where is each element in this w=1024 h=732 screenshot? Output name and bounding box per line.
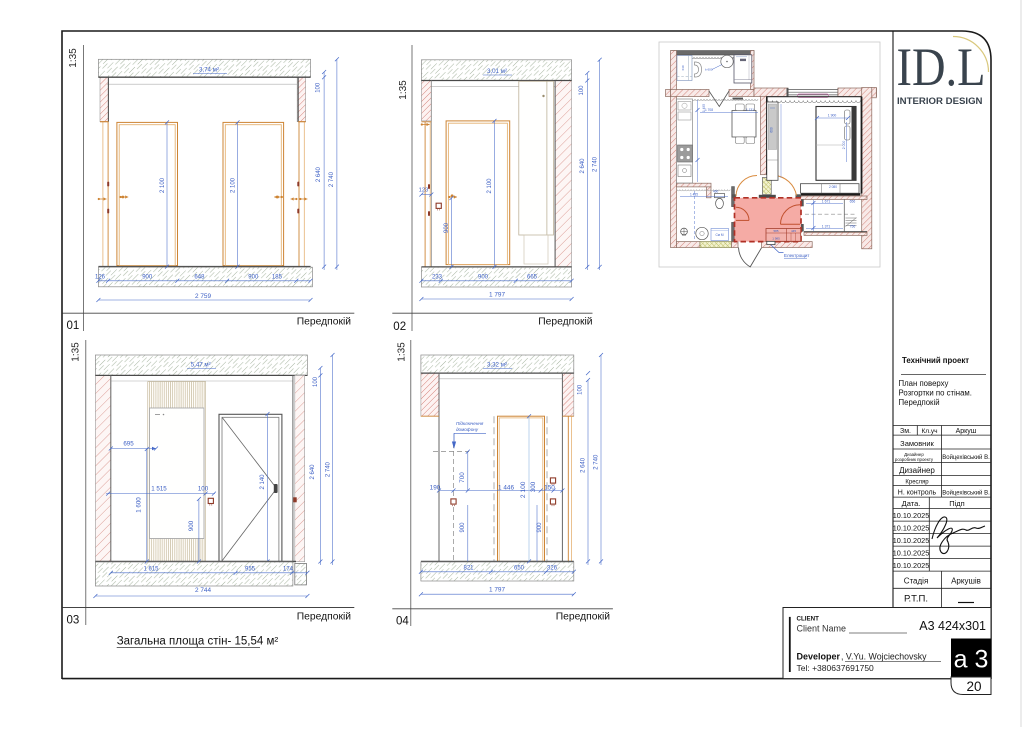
- svg-text:1 515: 1 515: [151, 486, 167, 493]
- svg-text:План поверху: План поверху: [899, 379, 949, 388]
- svg-text:756: 756: [850, 225, 856, 229]
- svg-text:CLIENT: CLIENT: [797, 616, 820, 623]
- svg-text:Електрощит: Електрощит: [784, 253, 810, 258]
- svg-text:Розгортки по стінам.: Розгортки по стінам.: [899, 389, 972, 398]
- svg-text:2 740: 2 740: [329, 171, 335, 187]
- svg-text:900: 900: [444, 222, 450, 233]
- svg-text:900: 900: [460, 522, 466, 533]
- svg-text:1 485: 1 485: [690, 193, 698, 197]
- svg-text:Н. контроль: Н. контроль: [898, 490, 937, 497]
- svg-text:20: 20: [966, 679, 981, 694]
- svg-text:Аркуш: Аркуш: [956, 428, 977, 435]
- svg-text:1 985: 1 985: [772, 237, 780, 241]
- svg-text:1:35: 1:35: [397, 342, 408, 362]
- svg-text:03: 03: [67, 615, 80, 627]
- svg-text:10.10.2025: 10.10.2025: [893, 511, 930, 520]
- svg-text:Стадія: Стадія: [904, 577, 929, 586]
- svg-text:Войцехівський В.: Войцехівський В.: [942, 454, 990, 461]
- svg-text:Дизайнер: Дизайнер: [899, 466, 935, 475]
- svg-text:955: 955: [245, 566, 256, 572]
- svg-text:Передпокій: Передпокій: [899, 398, 940, 407]
- svg-text:174: 174: [283, 566, 294, 572]
- svg-text:Зм.: Зм.: [900, 428, 911, 435]
- svg-text:Передпокій: Передпокій: [556, 612, 610, 623]
- svg-text:2 759: 2 759: [195, 293, 211, 300]
- svg-text:b 600: b 600: [705, 68, 713, 72]
- svg-text:02: 02: [393, 321, 406, 333]
- svg-text:2 740: 2 740: [326, 461, 332, 477]
- svg-text:100: 100: [578, 384, 584, 395]
- svg-text:1 371: 1 371: [822, 225, 831, 229]
- svg-text:2 100: 2 100: [230, 177, 236, 193]
- svg-text:Підп: Підп: [949, 499, 965, 508]
- svg-text:460: 460: [713, 190, 719, 194]
- svg-text:100: 100: [313, 376, 319, 387]
- svg-text:Аркушів: Аркушів: [951, 577, 981, 586]
- svg-text:233: 233: [432, 274, 443, 280]
- svg-text:A3 424x301: A3 424x301: [919, 619, 986, 633]
- svg-text:2 080: 2 080: [829, 185, 837, 189]
- svg-text:Передпокій: Передпокій: [538, 316, 592, 327]
- svg-text:10.10.2025: 10.10.2025: [893, 549, 930, 558]
- svg-text:1:35: 1:35: [68, 48, 79, 68]
- svg-text:Технічний проект: Технічний проект: [902, 356, 969, 365]
- svg-text:900: 900: [478, 274, 489, 280]
- svg-text:См М: См М: [716, 233, 724, 237]
- svg-text:821: 821: [463, 565, 474, 571]
- svg-text:2 740: 2 740: [593, 156, 599, 172]
- svg-text:1:35: 1:35: [398, 80, 409, 100]
- svg-text:1 600: 1 600: [136, 497, 143, 513]
- svg-text:900: 900: [142, 274, 153, 280]
- svg-text:640: 640: [681, 65, 685, 70]
- svg-text:3,32 м²: 3,32 м²: [487, 362, 507, 369]
- svg-text:900: 900: [537, 522, 543, 533]
- svg-text:Кл.уч: Кл.уч: [921, 428, 937, 435]
- svg-text:1 797: 1 797: [489, 291, 505, 298]
- svg-text:1 615: 1 615: [143, 566, 159, 572]
- svg-text:1 797: 1 797: [489, 587, 505, 594]
- svg-text:INTERIOR DESIGN: INTERIOR DESIGN: [897, 96, 983, 106]
- svg-text:326: 326: [547, 565, 558, 571]
- svg-text:Замовник: Замовник: [900, 439, 934, 448]
- svg-text:розробник проекту: розробник проекту: [895, 457, 934, 462]
- svg-text:300: 300: [530, 481, 537, 492]
- svg-text:665: 665: [527, 274, 538, 280]
- svg-text:, V.Yu. Wojciechovsky: , V.Yu. Wojciechovsky: [841, 652, 927, 662]
- svg-text:1 446: 1 446: [498, 485, 514, 492]
- svg-text:190: 190: [430, 485, 441, 492]
- svg-text:Tel: +380637691750: Tel: +380637691750: [797, 663, 875, 673]
- svg-text:123: 123: [419, 188, 429, 194]
- svg-text:445: 445: [791, 229, 796, 233]
- svg-text:домофону: домофону: [456, 427, 479, 432]
- svg-text:Client Name: Client Name: [797, 624, 847, 634]
- svg-text:100: 100: [315, 82, 321, 93]
- svg-text:900: 900: [248, 274, 259, 280]
- svg-text:2 640: 2 640: [581, 457, 587, 473]
- svg-text:Передпокій: Передпокій: [297, 611, 351, 622]
- svg-text:10.10.2025: 10.10.2025: [893, 536, 930, 545]
- svg-text:700: 700: [459, 472, 466, 483]
- svg-text:2 100: 2 100: [520, 481, 527, 498]
- svg-text:2 640: 2 640: [316, 166, 322, 182]
- svg-text:185: 185: [272, 274, 283, 280]
- svg-text:150: 150: [544, 485, 555, 492]
- svg-text:2 740: 2 740: [593, 454, 599, 470]
- svg-text:2 000: 2 000: [842, 141, 846, 150]
- svg-text:01: 01: [67, 320, 80, 332]
- svg-text:2 640: 2 640: [580, 158, 586, 174]
- svg-text:695: 695: [123, 440, 134, 447]
- svg-text:Загальна площа стін- 15,54 м²: Загальна площа стін- 15,54 м²: [117, 636, 279, 648]
- svg-text:648: 648: [194, 274, 205, 280]
- svg-text:Дата.: Дата.: [902, 499, 921, 508]
- svg-text:3,01 м²: 3,01 м²: [487, 68, 507, 75]
- svg-text:Передпокій: Передпокій: [297, 316, 351, 327]
- svg-text:Підключення: Підключення: [456, 421, 484, 426]
- svg-text:3,74 м²: 3,74 м²: [199, 67, 219, 74]
- svg-text:1 900: 1 900: [828, 114, 837, 118]
- svg-text:585: 585: [773, 229, 778, 233]
- svg-text:a 3: a 3: [954, 646, 989, 674]
- svg-text:Р.Т.П.: Р.Т.П.: [904, 594, 928, 605]
- svg-text:650: 650: [514, 565, 525, 571]
- svg-text:10.10.2025: 10.10.2025: [893, 524, 930, 533]
- svg-text:100: 100: [579, 85, 585, 96]
- svg-text:600: 600: [770, 127, 774, 133]
- svg-text:2 744: 2 744: [195, 587, 211, 594]
- svg-text:126: 126: [95, 274, 106, 280]
- svg-text:Кресляр: Кресляр: [905, 480, 929, 486]
- svg-text:900: 900: [188, 520, 195, 531]
- svg-text:Developer: Developer: [797, 652, 841, 662]
- svg-text:1 708: 1 708: [705, 108, 713, 112]
- svg-text:2 140: 2 140: [260, 474, 266, 490]
- svg-text:2 640: 2 640: [310, 464, 316, 480]
- svg-text:5,47 м²: 5,47 м²: [191, 362, 211, 369]
- svg-text:10.10.2025: 10.10.2025: [893, 561, 930, 570]
- svg-text:04: 04: [396, 616, 409, 628]
- svg-text:100: 100: [198, 486, 209, 493]
- svg-text:1:35: 1:35: [71, 342, 82, 362]
- svg-text:2 100: 2 100: [160, 177, 166, 193]
- svg-text:1 671: 1 671: [822, 200, 831, 204]
- svg-text:Войцехівський В.: Войцехівський В.: [942, 490, 990, 497]
- svg-text:1 131: 1 131: [746, 108, 754, 112]
- svg-text:2 100: 2 100: [487, 178, 493, 194]
- svg-text:ID.L: ID.L: [897, 37, 986, 97]
- svg-text:656: 656: [850, 200, 856, 204]
